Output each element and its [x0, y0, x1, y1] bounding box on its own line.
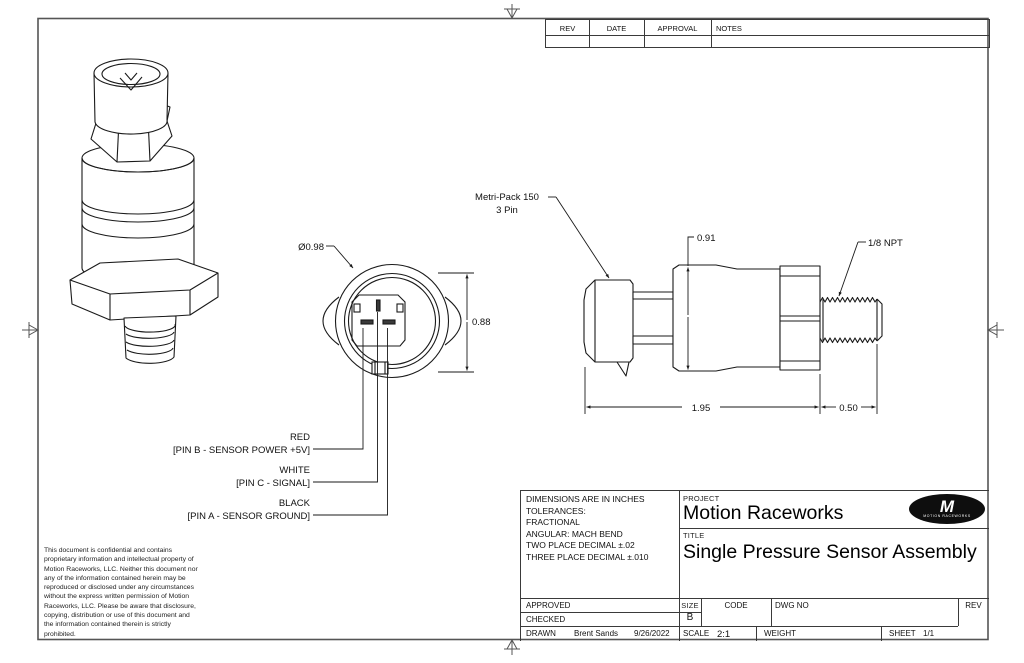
dim-body-length: 1.95: [692, 403, 711, 414]
dim-front-diameter: Ø0.98: [298, 242, 324, 253]
weight-label: WEIGHT: [764, 629, 796, 638]
confidentiality-line: copying, distribution or use of this doc…: [44, 611, 198, 620]
rev-label: REV: [958, 601, 989, 610]
pin-desc-c: [PIN C - SIGNAL]: [236, 478, 310, 489]
pin-wire-red: RED: [290, 432, 310, 443]
front-view: [323, 265, 461, 378]
connector-type-label-line2: 3 Pin: [496, 205, 518, 216]
side-view: [584, 265, 882, 376]
scale-value: 2:1: [717, 629, 730, 640]
tolerance-notes: DIMENSIONS ARE IN INCHES TOLERANCES: FRA…: [526, 494, 648, 564]
thread-spec-label: 1/8 NPT: [868, 238, 903, 249]
confidentiality-line: the information contained therein is str…: [44, 620, 198, 629]
drawn-by-value: Brent Sands: [574, 629, 618, 638]
confidentiality-line: any of the information contained herein …: [44, 574, 198, 583]
confidentiality-line: reproduced or disclosed under any circum…: [44, 583, 198, 592]
dwg-no-label: DWG NO: [775, 601, 809, 610]
rev-col-header: REV: [546, 24, 589, 33]
dim-thread-length: 0.50: [839, 403, 858, 414]
drawn-label: DRAWN: [526, 629, 556, 638]
tolerance-note-line: TWO PLACE DECIMAL ±.02: [526, 540, 648, 552]
tolerance-note-line: THREE PLACE DECIMAL ±.010: [526, 552, 648, 564]
tolerance-note-line: TOLERANCES:: [526, 506, 648, 518]
revision-table: REV DATE APPROVAL NOTES: [545, 19, 990, 48]
approval-col-header: APPROVAL: [644, 24, 711, 33]
connector-type-label-line1: Metri-Pack 150: [475, 192, 539, 203]
logo-text: MOTION RACEWORKS: [923, 514, 971, 519]
approved-label: APPROVED: [526, 601, 570, 610]
isometric-view: [70, 59, 218, 363]
pin-labels: RED [PIN B - SENSOR POWER +5V] WHITE [PI…: [173, 432, 311, 522]
confidentiality-line: without the express written permission o…: [44, 592, 198, 601]
confidentiality-line: proprietary information and intellectual…: [44, 555, 198, 564]
sheet-value: 1/1: [923, 629, 934, 638]
motion-raceworks-logo: M MOTION RACEWORKS: [909, 494, 985, 524]
scale-label: SCALE: [683, 629, 709, 638]
notes-col-header: NOTES: [716, 24, 742, 33]
title-label: TITLE: [683, 531, 704, 540]
title-block: DIMENSIONS ARE IN INCHES TOLERANCES: FRA…: [520, 490, 989, 641]
code-label: CODE: [701, 601, 771, 610]
pin-desc-b: [PIN B - SENSOR POWER +5V]: [173, 445, 310, 456]
confidentiality-notice: This document is confidential and contai…: [44, 546, 198, 639]
drawn-date-value: 9/26/2022: [634, 629, 670, 638]
confidentiality-line: Motion Raceworks, LLC. Neither this docu…: [44, 565, 198, 574]
sheet-label: SHEET: [889, 629, 916, 638]
project-name: Motion Raceworks: [683, 502, 843, 525]
drawing-title: Single Pressure Sensor Assembly: [683, 541, 977, 564]
confidentiality-line: This document is confidential and contai…: [44, 546, 198, 555]
pin-desc-a: [PIN A - SENSOR GROUND]: [188, 511, 310, 522]
checked-label: CHECKED: [526, 615, 565, 624]
logo-letter: M: [940, 500, 954, 514]
size-label: SIZE: [679, 601, 701, 610]
dim-front-height: 0.88: [472, 317, 491, 328]
confidentiality-line: prohibited.: [44, 630, 198, 639]
pin-wire-black: BLACK: [279, 498, 311, 509]
drawing-sheet: Ø0.98 0.88: [0, 0, 1024, 663]
tolerance-note-line: FRACTIONAL: [526, 517, 648, 529]
tolerance-note-line: DIMENSIONS ARE IN INCHES: [526, 494, 648, 506]
tolerance-note-line: ANGULAR: MACH BEND: [526, 529, 648, 541]
size-value: B: [679, 612, 701, 623]
confidentiality-line: Raceworks, LLC. Please be aware that dis…: [44, 602, 198, 611]
pin-leader-lines: [313, 312, 388, 515]
pin-wire-white: WHITE: [279, 465, 310, 476]
dim-side-height: 0.91: [697, 233, 716, 244]
date-col-header: DATE: [589, 24, 644, 33]
